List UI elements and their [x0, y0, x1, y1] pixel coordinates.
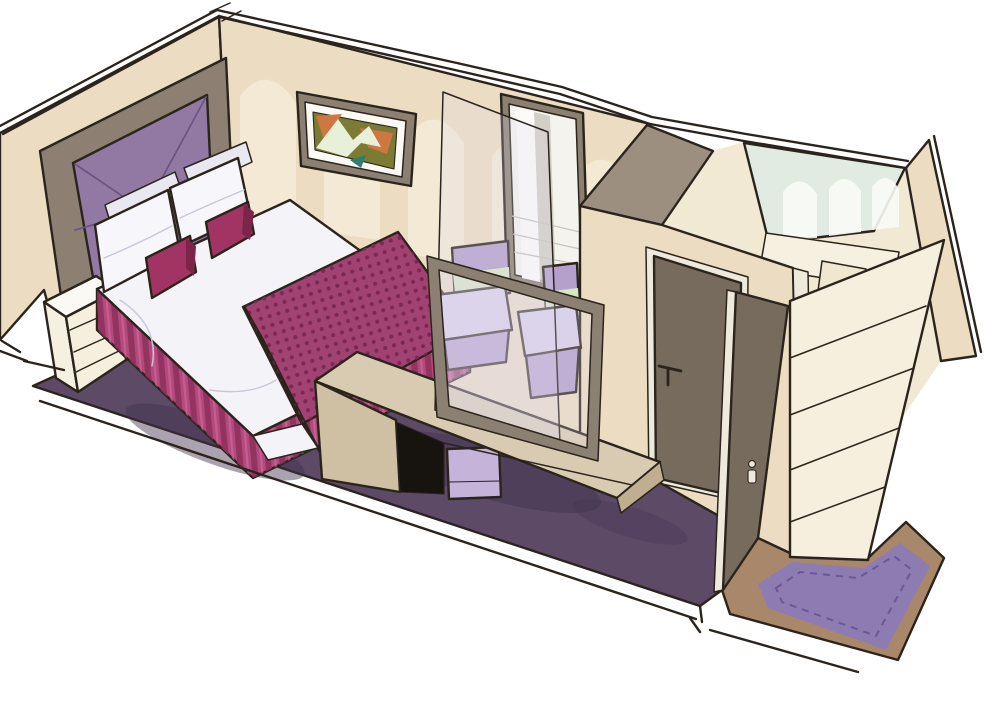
- bathroom-arch: [783, 181, 817, 240]
- bathroom-arch: [872, 178, 899, 230]
- cabin-cutaway-illustration: Hand-drawn cutaway illustration of an in…: [0, 0, 1000, 703]
- vanity-stool: [447, 447, 501, 499]
- cabin-illustration-page: Hand-drawn cutaway illustration of an in…: [0, 0, 1000, 703]
- entry-door-handle: [749, 461, 756, 468]
- entry-door-handle-plate: [748, 470, 756, 483]
- bathroom-arch: [829, 179, 861, 236]
